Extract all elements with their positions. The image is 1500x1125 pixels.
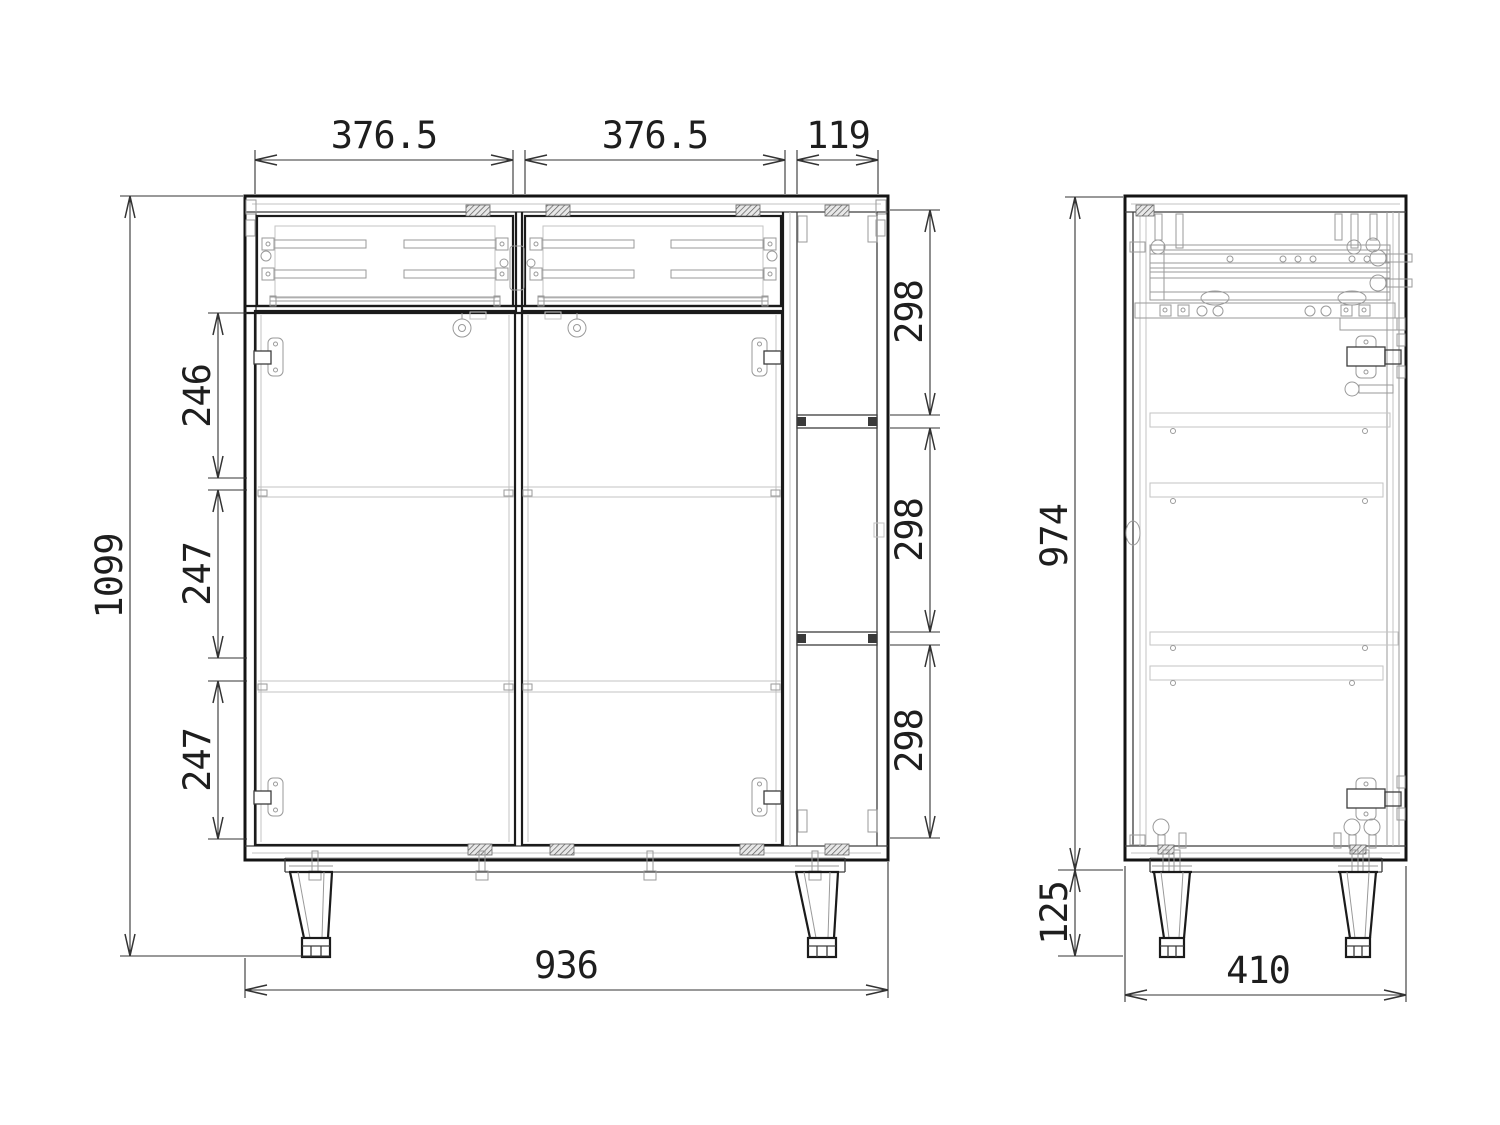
dim-label-open-column-width: 119 [806,114,870,157]
dim-label-overall-width: 936 [534,944,598,987]
dim-label-drawer-left-width: 376.5 [331,114,437,157]
column-divider-bottom [797,632,877,645]
dim-label-depth: 410 [1226,949,1290,992]
hinge-left-top [254,338,283,376]
cam-lock-left [453,312,486,337]
side-leg-left [1152,866,1192,957]
dim-side-carcass-height: 974 [1033,197,1123,870]
dim-side-leg-height: 125 [1033,870,1123,956]
hinge-right-bottom [752,778,781,816]
side-carcass-outline [1125,196,1406,860]
dim-label-niche-top: 298 [888,280,931,344]
hinge-right-top [752,338,781,376]
open-column [797,216,884,832]
dim-front-shelf-gaps: 246 247 247 [176,313,247,839]
side-door-edge [1387,212,1399,846]
side-leg-right [1338,866,1378,957]
drawing-sheet: 376.5 376.5 119 1099 246 247 247 [0,0,1500,1125]
drawer-left [257,216,513,306]
dim-front-overall-width: 936 [245,862,888,998]
dim-label-carcass-height: 974 [1033,504,1076,568]
door-left [255,311,515,845]
dim-label-leg-height: 125 [1033,881,1076,945]
dim-front-niches: 298 298 298 [888,210,940,838]
dim-side-depth: 410 [1125,866,1406,1002]
cam-lock-right [545,312,586,337]
hinge-left-bottom [254,778,283,816]
side-view [1125,196,1412,957]
dim-label-shelf-gap-top: 246 [176,364,219,428]
column-divider-top [797,415,877,428]
dim-label-niche-middle: 298 [888,498,931,562]
door-right [522,311,782,845]
side-hinge-bottom [1347,776,1405,820]
dim-label-drawer-right-width: 376.5 [602,114,708,157]
front-view [245,196,888,957]
front-carcass-outline [245,196,888,860]
dim-front-top-widths: 376.5 376.5 119 [255,114,878,194]
shelf-line-upper [258,487,781,497]
dim-label-shelf-gap-bottom: 247 [176,728,219,792]
side-hinge-top [1347,334,1405,378]
drawer-right [525,216,781,306]
side-bottom-studs [1136,205,1380,854]
dim-label-niche-bottom: 298 [888,709,931,773]
dim-label-shelf-gap-middle: 247 [176,542,219,606]
side-back-panel [1126,212,1146,846]
side-shelves [1150,413,1398,686]
cabinet-technical-drawing: 376.5 376.5 119 1099 246 247 247 [0,0,1500,1125]
shelf-line-lower [258,681,781,692]
side-drawer-slides [1135,214,1412,396]
dim-label-overall-height: 1099 [88,533,131,618]
